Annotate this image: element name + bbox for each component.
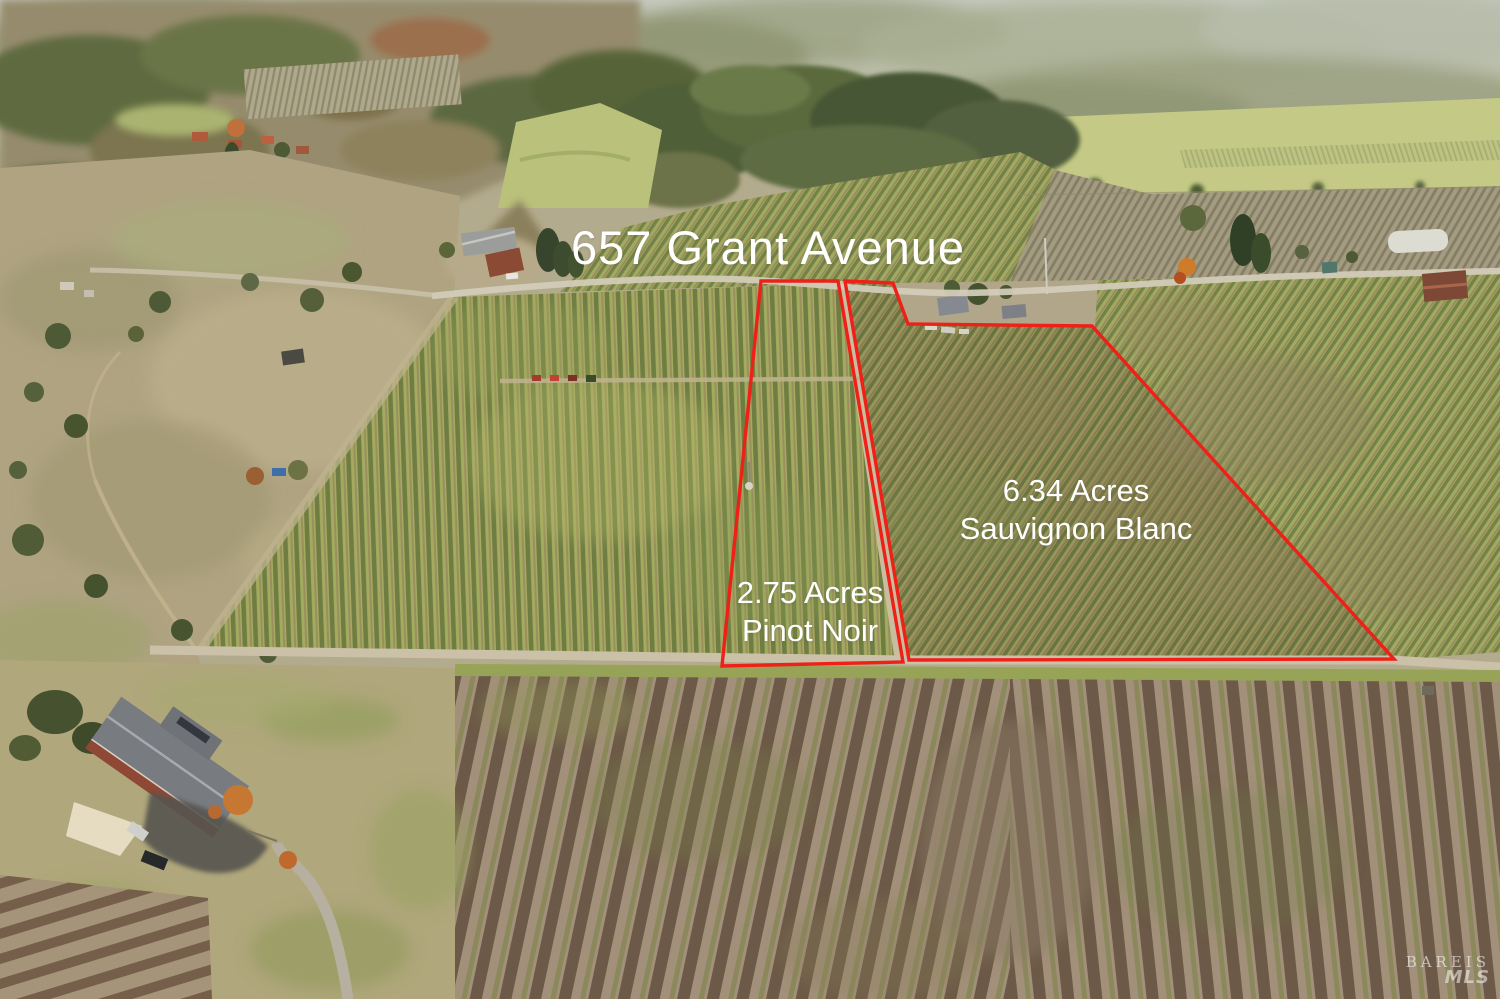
- parcel-label-sauvignon-blanc: 6.34 Acres Sauvignon Blanc: [960, 472, 1193, 548]
- autumn-tree: [223, 785, 253, 815]
- home-parcel: [0, 660, 470, 999]
- oak-tree: [1180, 205, 1206, 231]
- mls-watermark: BAREIS MLS: [1406, 955, 1490, 985]
- watermark-mls: MLS: [1406, 970, 1490, 985]
- autumn-tree: [1174, 272, 1186, 284]
- trailer: [941, 326, 955, 333]
- tractor: [550, 375, 559, 381]
- tractor: [586, 375, 596, 382]
- oak-canopy: [9, 735, 41, 761]
- teal-shed: [1322, 261, 1338, 273]
- autumn-tree: [279, 851, 297, 869]
- autumn-tree: [208, 805, 222, 819]
- parcel-variety: Sauvignon Blanc: [960, 510, 1193, 548]
- listing-address-title: 657 Grant Avenue: [571, 220, 965, 275]
- grass-verge: [455, 671, 1500, 677]
- aerial-photo-scene: [0, 0, 1500, 999]
- blue-tarp: [272, 468, 286, 476]
- parcel-acreage: 2.75 Acres: [737, 574, 883, 612]
- parcel-label-pinot-noir: 2.75 Acres Pinot Noir: [737, 574, 883, 650]
- parcel-variety: Pinot Noir: [737, 612, 883, 650]
- parcel-acreage: 6.34 Acres: [960, 472, 1193, 510]
- aerial-listing-photo: 657 Grant Avenue 2.75 Acres Pinot Noir 6…: [0, 0, 1500, 999]
- red-barn: [1422, 270, 1468, 302]
- house-roof: [1002, 304, 1027, 319]
- redwood-tree: [1251, 233, 1271, 273]
- trailer: [959, 329, 969, 334]
- field-equipment: [1422, 686, 1434, 695]
- white-car: [506, 272, 518, 279]
- oak-canopy: [27, 690, 83, 734]
- tractor: [568, 375, 577, 381]
- white-tarp-pond: [1387, 228, 1448, 253]
- tractor: [532, 375, 541, 381]
